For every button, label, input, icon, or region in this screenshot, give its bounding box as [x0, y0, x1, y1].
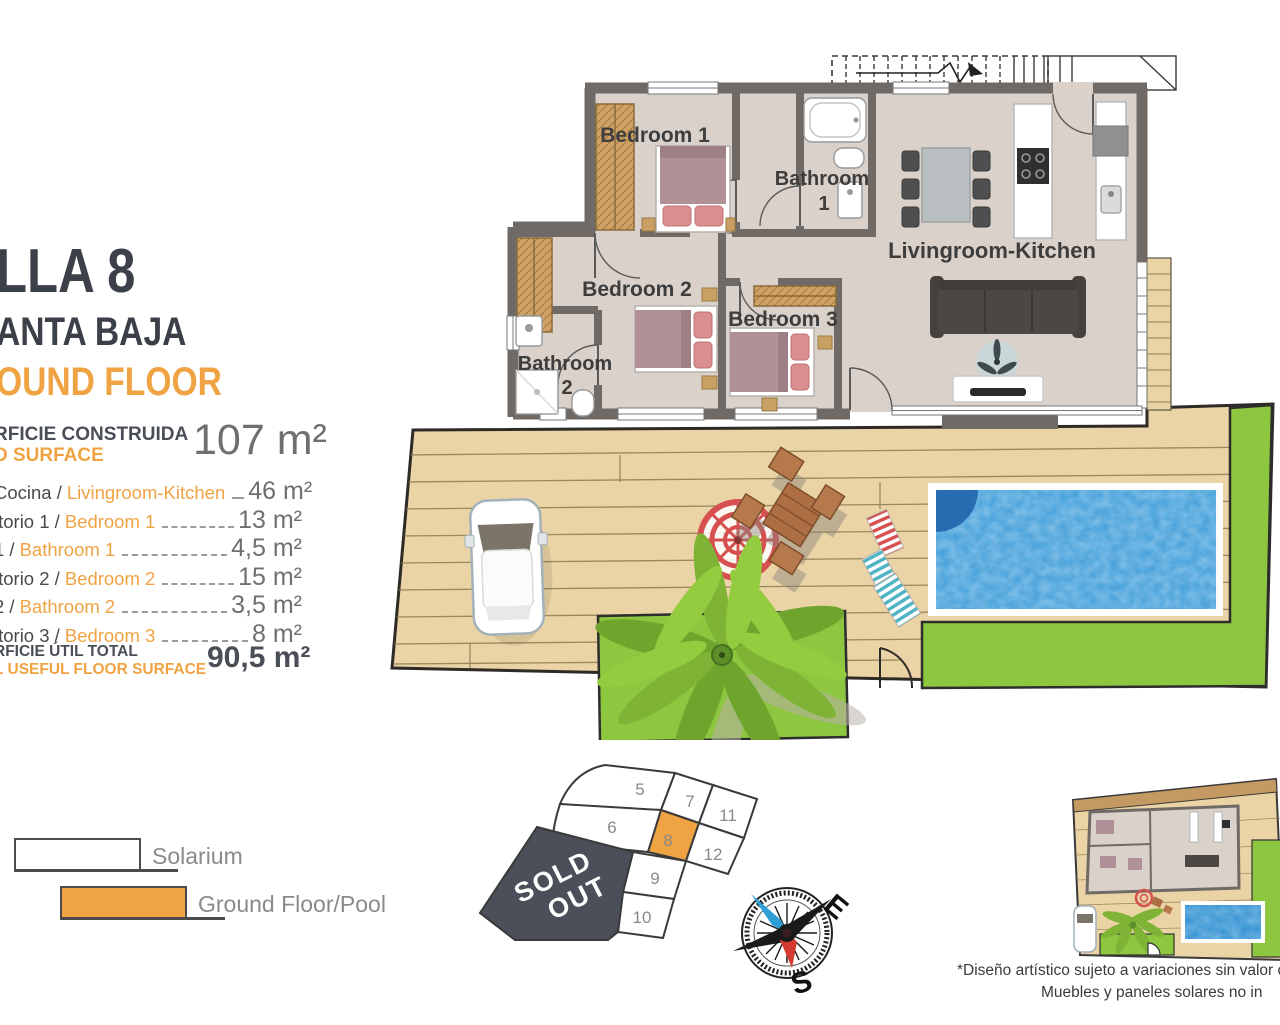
lot-number-8: 8 — [663, 831, 672, 850]
room-area-value: 46 m² — [248, 477, 312, 506]
room-area-list: Cocina / Livingroom-Kitchen 46 m² itorio… — [0, 477, 302, 649]
built-surface-header: RFICIE CONSTRUIDA D SURFACE — [0, 424, 188, 467]
legend-swatch-solarium — [14, 838, 141, 871]
kitchen-sink — [1101, 186, 1121, 213]
lot-number-7: 7 — [685, 792, 694, 811]
fridge — [1093, 126, 1128, 156]
room-area-row: 2 / Bathroom 2 3,5 m² — [0, 591, 302, 620]
house: Bedroom 1 Bathroom 1 Bedroom 2 Bathroom … — [507, 82, 1147, 429]
total-surface-header: RFICIE ÚTIL TOTAL L USEFUL FLOOR SURFACE — [0, 643, 206, 679]
room-label-es: itorio 2 / — [0, 568, 60, 590]
room-area-value: 13 m² — [238, 506, 302, 535]
dining-table — [902, 148, 990, 227]
dashed-leader — [162, 526, 234, 528]
lot-number-6: 6 — [607, 818, 616, 837]
legend-swatch-ground-floor — [60, 886, 187, 919]
room-area-value: 15 m² — [238, 563, 302, 592]
mini-plan-thumbnail — [1065, 750, 1280, 975]
room-label-es: 1 / — [0, 539, 15, 561]
legend-label-solarium: Solarium — [152, 843, 243, 870]
room-area-row: Cocina / Livingroom-Kitchen 46 m² — [0, 477, 302, 506]
dashed-leader — [162, 583, 234, 585]
mini-pool — [1181, 901, 1265, 943]
lot-5 — [560, 765, 675, 810]
legend-label-ground-floor: Ground Floor/Pool — [198, 891, 386, 918]
label-bathroom-2: Bathroom — [518, 353, 612, 375]
built-surface-value: 107 m² — [193, 416, 327, 465]
lot-number-9: 9 — [650, 869, 659, 888]
label-bedroom-3: Bedroom 3 — [728, 308, 838, 331]
room-label-es: itorio 1 / — [0, 511, 60, 533]
room-label-es: Cocina / — [0, 482, 62, 504]
sofa — [930, 276, 1086, 338]
room-label-en: Bedroom 2 — [65, 568, 156, 590]
lot-number-11: 11 — [719, 806, 737, 825]
room-area-value: 3,5 m² — [231, 591, 302, 620]
label-livingroom-kitchen: Livingroom-Kitchen — [888, 238, 1096, 263]
built-surface-label-en: D SURFACE — [0, 445, 188, 466]
compass-rose-icon: E S — [733, 888, 854, 1002]
car — [464, 498, 555, 647]
side-deck-strip — [1147, 258, 1171, 410]
tv-console — [953, 376, 1043, 402]
subtitle-english: OUND FLOOR — [0, 360, 222, 405]
total-surface-value: 90,5 m² — [207, 641, 310, 675]
room-label-en: Bedroom 1 — [65, 511, 156, 533]
pool — [928, 483, 1223, 616]
room-label-es: 2 / — [0, 596, 15, 618]
mini-house — [1087, 806, 1239, 893]
mini-car — [1074, 906, 1096, 952]
room-label-en: Bathroom 1 — [20, 539, 116, 561]
room-label-en: Livingroom-Kitchen — [67, 482, 225, 504]
room-label-en: Bathroom 2 — [20, 596, 116, 618]
page-title: LLA 8 — [0, 236, 135, 307]
dashed-leader — [122, 554, 227, 556]
room-area-row: itorio 2 / Bedroom 2 15 m² — [0, 563, 302, 592]
total-label-es: RFICIE ÚTIL TOTAL — [0, 643, 206, 661]
stairs-direction-arrow — [856, 62, 983, 82]
dashed-leader — [232, 497, 244, 499]
floor-plan: Bedroom 1 Bathroom 1 Bedroom 2 Bathroom … — [380, 28, 1280, 740]
label-bathroom-2-number: 2 — [561, 377, 572, 399]
disclaimer-line-2: Muebles y paneles solares no in — [1041, 984, 1262, 1002]
total-label-en: L USEFUL FLOOR SURFACE — [0, 661, 206, 679]
lot-number-10: 10 — [633, 908, 652, 927]
lot-number-5: 5 — [635, 780, 644, 799]
subtitle-spanish: ANTA BAJA — [0, 310, 186, 355]
room-area-value: 4,5 m² — [231, 534, 302, 563]
bedroom-1-bed — [642, 146, 735, 232]
lot-number-12: 12 — [704, 845, 723, 864]
label-bedroom-1: Bedroom 1 — [600, 124, 710, 147]
stove — [1017, 148, 1049, 184]
dashed-leader — [122, 611, 227, 613]
site-map: 5 6 7 8 9 10 11 12 SOLD OUT E S — [440, 745, 860, 1025]
label-bedroom-2: Bedroom 2 — [582, 278, 692, 301]
room-area-row: itorio 1 / Bedroom 1 13 m² — [0, 506, 302, 535]
label-bathroom-1-number: 1 — [818, 193, 829, 215]
label-bathroom-1: Bathroom — [775, 168, 869, 190]
built-surface-label-es: RFICIE CONSTRUIDA — [0, 424, 188, 445]
room-area-row: 1 / Bathroom 1 4,5 m² — [0, 534, 302, 563]
